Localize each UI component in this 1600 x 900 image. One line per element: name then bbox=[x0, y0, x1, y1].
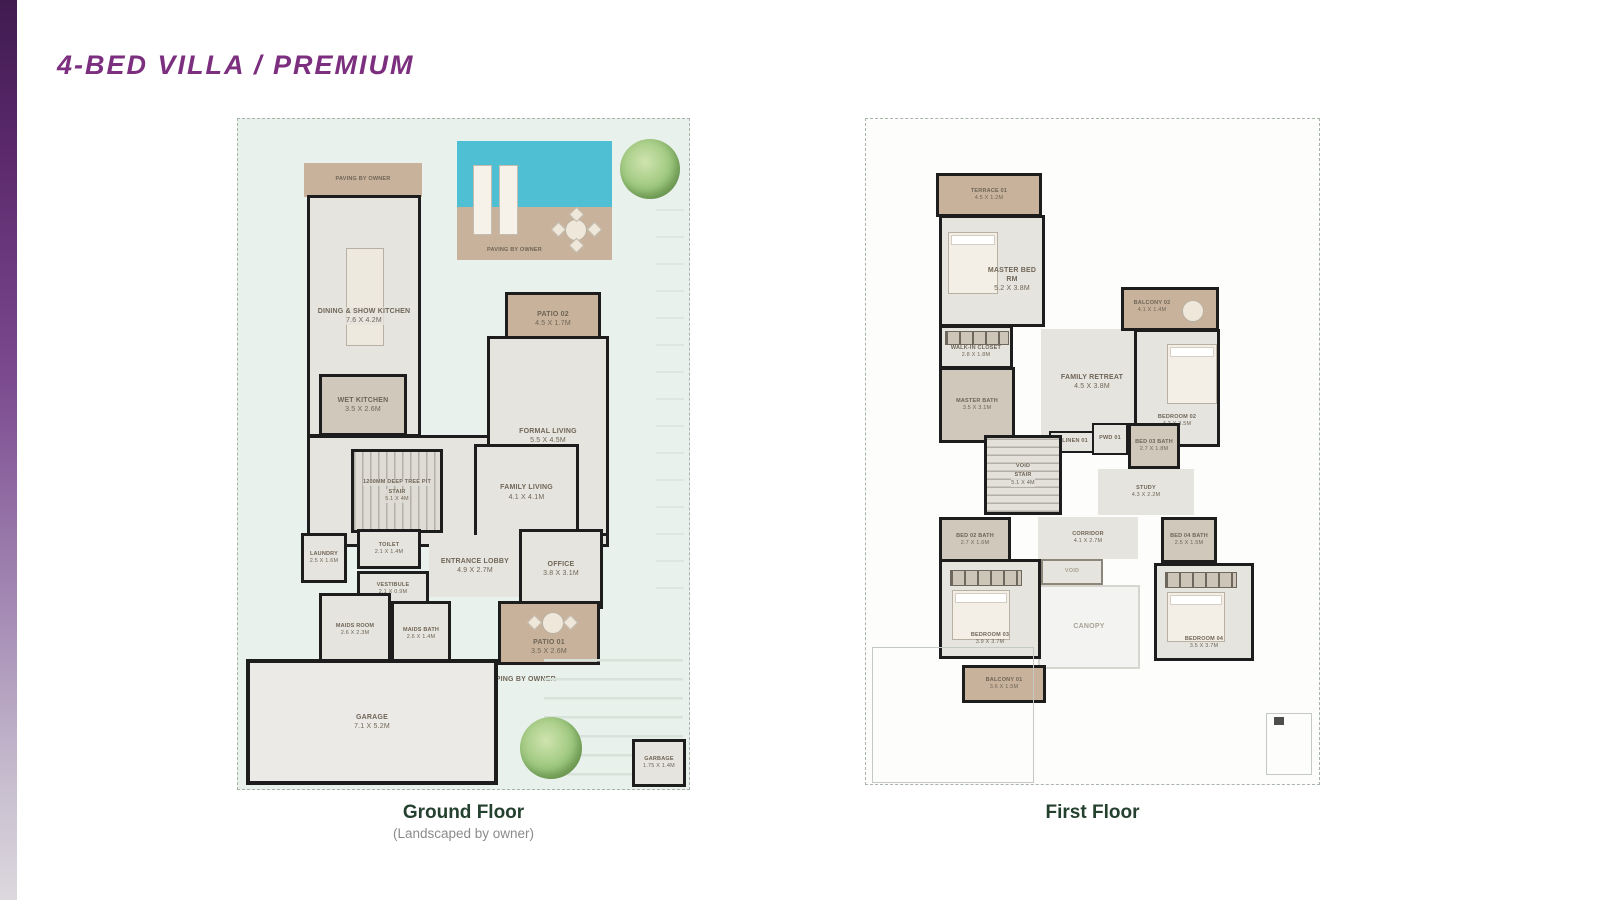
room-label: CANOPY bbox=[1073, 623, 1104, 630]
room-master-bed: MASTER BED RM5.2 X 3.8M bbox=[939, 215, 1045, 327]
room-bed04-bath: BED 04 BATH2.5 X 1.5M bbox=[1161, 517, 1217, 563]
room-canopy: CANOPY bbox=[1038, 585, 1140, 669]
room-label: PAVING BY OWNER bbox=[336, 176, 391, 182]
room-label: BED 03 BATH bbox=[1135, 439, 1173, 445]
room-label: PWD 01 bbox=[1099, 435, 1121, 441]
room-label: STAIR bbox=[388, 489, 405, 495]
room-family-living: FAMILY LIVING4.1 X 4.1M bbox=[474, 444, 579, 541]
bed-icon bbox=[1167, 592, 1225, 642]
room-label: MASTER BATH bbox=[956, 398, 998, 404]
first-floor-caption-title: First Floor bbox=[865, 802, 1320, 824]
ground-floor-plan: PAVING BY OWNER PAVING BY OWNER DINING &… bbox=[237, 118, 690, 790]
room-garbage: GARBAGE1.75 X 1.4M bbox=[632, 739, 686, 787]
room-label: PATIO 02 bbox=[537, 311, 569, 318]
pool-lounger-icon bbox=[473, 165, 492, 235]
room-label: VOID bbox=[1065, 568, 1079, 574]
room-label: BEDROOM 02 bbox=[1158, 414, 1196, 420]
patio-chair-icon bbox=[527, 615, 543, 631]
room-master-bath: MASTER BATH3.5 X 3.1M bbox=[939, 367, 1015, 443]
room-paving-top: PAVING BY OWNER bbox=[304, 163, 422, 197]
room-maids-room: MAIDS ROOM2.6 X 2.3M bbox=[319, 593, 391, 667]
room-label: FAMILY LIVING bbox=[500, 484, 553, 491]
room-label: 1200MM DEEP TREE PIT bbox=[363, 479, 431, 485]
room-label: ENTRANCE LOBBY bbox=[441, 558, 509, 565]
room-office: OFFICE3.8 X 3.1M bbox=[519, 529, 603, 609]
room-label: MAIDS ROOM bbox=[336, 623, 374, 629]
room-label: VESTIBULE bbox=[377, 582, 410, 588]
bed-icon bbox=[948, 232, 998, 294]
room-label: BED 02 BATH bbox=[956, 533, 994, 539]
side-paving bbox=[656, 209, 684, 599]
room-label: TERRACE 01 bbox=[971, 188, 1007, 194]
room-laundry: LAUNDRY2.5 X 1.6M bbox=[301, 533, 347, 583]
patio-chair-icon bbox=[551, 222, 567, 238]
room-bed03-bath: BED 03 BATH2.7 X 1.8M bbox=[1128, 423, 1180, 469]
room-label: VOID bbox=[1016, 463, 1030, 469]
roof-outline bbox=[1266, 713, 1312, 775]
first-floor-caption: First Floor bbox=[865, 802, 1320, 824]
tree-icon bbox=[620, 139, 680, 199]
room-corridor: CORRIDOR4.1 X 2.7M bbox=[1038, 517, 1138, 559]
room-stair-void: VOID STAIR5.1 X 4M bbox=[984, 435, 1062, 515]
patio-table-icon bbox=[542, 612, 564, 634]
room-label: WALK-IN CLOSET bbox=[951, 345, 1001, 351]
room-patio-01: PATIO 013.5 X 2.6M bbox=[498, 601, 600, 665]
room-toilet: TOILET2.1 X 1.4M bbox=[357, 529, 421, 569]
room-label: FAMILY RETREAT bbox=[1061, 374, 1123, 381]
room-label: LINEN 01 bbox=[1062, 438, 1088, 444]
room-maids-bath: MAIDS BATH2.6 X 1.4M bbox=[391, 601, 451, 667]
wardrobe-icon bbox=[945, 331, 1009, 345]
room-stair: 1200MM DEEP TREE PIT STAIR5.1 X 4M bbox=[351, 449, 443, 533]
room-label: CORRIDOR bbox=[1072, 531, 1104, 537]
room-label: WET KITCHEN bbox=[338, 397, 389, 404]
room-study: STUDY4.3 X 2.2M bbox=[1098, 469, 1194, 515]
patio-table-icon bbox=[1182, 300, 1204, 322]
room-label: OFFICE bbox=[548, 561, 575, 568]
ground-floor-caption-title: Ground Floor bbox=[237, 802, 690, 824]
room-label: STAIR bbox=[1014, 472, 1031, 478]
room-label: STUDY bbox=[1136, 485, 1156, 491]
room-pwd-01: PWD 01 bbox=[1092, 423, 1128, 455]
roof-detail bbox=[1274, 717, 1284, 725]
room-terrace-01: TERRACE 014.5 X 1.2M bbox=[936, 173, 1042, 217]
room-label: FORMAL LIVING bbox=[519, 428, 577, 435]
room-void: VOID bbox=[1041, 559, 1103, 585]
bed-icon bbox=[952, 590, 1010, 640]
dining-table-icon bbox=[346, 248, 384, 346]
ground-floor-caption: Ground Floor (Landscaped by owner) bbox=[237, 802, 690, 841]
roof-outline bbox=[872, 647, 1034, 783]
room-label: MAIDS BATH bbox=[403, 627, 439, 633]
room-family-retreat: FAMILY RETREAT4.5 X 3.8M bbox=[1041, 329, 1143, 435]
room-label: PAVING BY OWNER bbox=[487, 247, 542, 253]
first-floor-plan: TERRACE 014.5 X 1.2M MASTER BED RM5.2 X … bbox=[865, 118, 1320, 785]
room-pool-deck: PAVING BY OWNER bbox=[457, 207, 612, 260]
room-label: BED 04 BATH bbox=[1170, 533, 1208, 539]
room-garage: GARAGE7.1 X 5.2M bbox=[246, 659, 498, 785]
room-balcony-02: BALCONY 024.1 X 1.4M bbox=[1121, 287, 1219, 331]
room-label: TOILET bbox=[379, 542, 400, 548]
gradient-accent-bar bbox=[0, 0, 17, 900]
tree-icon bbox=[520, 717, 582, 779]
room-bed02-bath: BED 02 BATH2.7 X 1.6M bbox=[939, 517, 1011, 563]
room-walkin-closet: WALK-IN CLOSET2.8 X 1.8M bbox=[939, 325, 1013, 369]
page-title: 4-BED VILLA / PREMIUM bbox=[57, 50, 415, 81]
room-wet-kitchen: WET KITCHEN3.5 X 2.6M bbox=[319, 374, 407, 436]
ground-floor-caption-sub: (Landscaped by owner) bbox=[237, 826, 690, 841]
pool-lounger-icon bbox=[499, 165, 518, 235]
room-label: GARBAGE bbox=[644, 756, 674, 762]
room-label: PATIO 01 bbox=[533, 639, 565, 646]
room-bedroom-03: BEDROOM 033.9 X 3.7M bbox=[939, 559, 1041, 659]
room-label: BALCONY 02 bbox=[1134, 300, 1171, 306]
wardrobe-icon bbox=[1165, 572, 1237, 588]
room-entrance-lobby: ENTRANCE LOBBY4.9 X 2.7M bbox=[429, 535, 521, 597]
page: 4-BED VILLA / PREMIUM PAVING BY OWNER PA… bbox=[0, 0, 1600, 900]
patio-chair-icon bbox=[587, 222, 603, 238]
bed-icon bbox=[1167, 344, 1217, 404]
room-bedroom-04: BEDROOM 043.5 X 3.7M bbox=[1154, 563, 1254, 661]
wardrobe-icon bbox=[950, 570, 1022, 586]
patio-chair-icon bbox=[563, 615, 579, 631]
room-label: GARAGE bbox=[356, 714, 388, 721]
room-label: LAUNDRY bbox=[310, 551, 338, 557]
